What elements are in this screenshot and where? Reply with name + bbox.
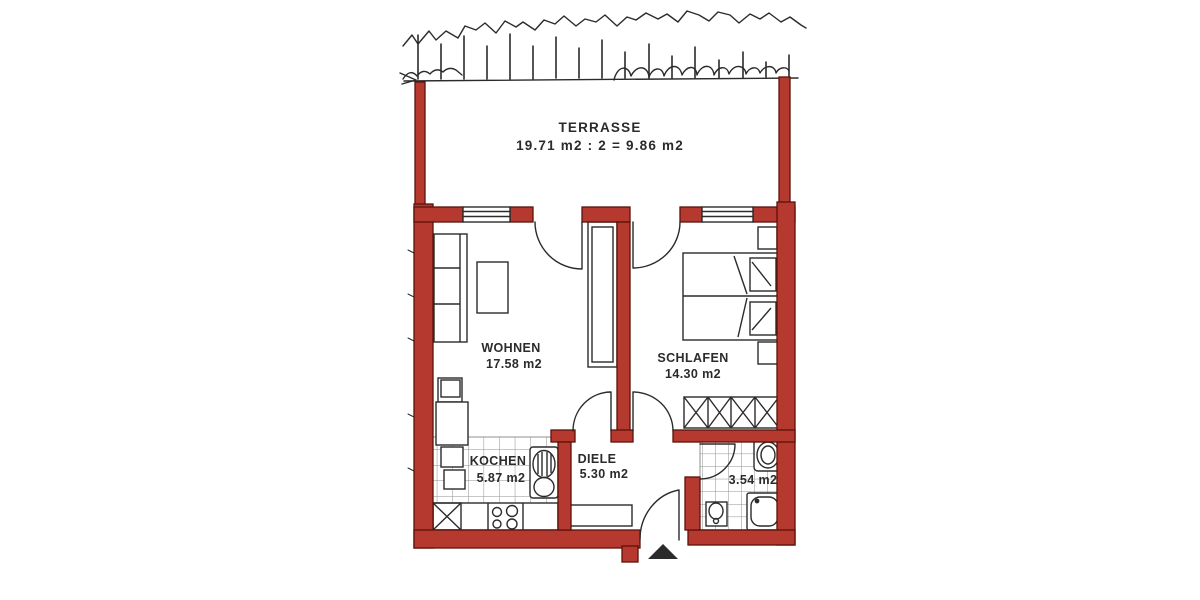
dining-chair-top xyxy=(441,380,460,397)
label-schlafen-area: 14.30 m2 xyxy=(665,366,721,382)
toilet xyxy=(706,502,727,526)
label-terrasse: TERRASSE xyxy=(558,120,641,136)
floorplan-drawing xyxy=(0,0,1200,600)
label-schlafen: SCHLAFEN xyxy=(657,350,728,366)
label-diele-area: 5.30 m2 xyxy=(580,466,629,482)
bed xyxy=(683,253,778,340)
label-diele: DIELE xyxy=(578,451,617,467)
balcony-door-living xyxy=(535,222,582,269)
door-hall-living xyxy=(573,392,611,431)
hedge xyxy=(400,11,806,84)
label-kochen: KOCHEN xyxy=(470,453,527,469)
coffee-table xyxy=(477,262,508,313)
entrance-arrow xyxy=(648,544,678,559)
fence xyxy=(404,34,798,81)
label-kochen-area: 5.87 m2 xyxy=(477,470,526,486)
wall-ticks xyxy=(408,250,414,471)
floorplan: TERRASSE 19.71 m2 : 2 = 9.86 m2 WOHNEN 1… xyxy=(0,0,1200,600)
door-hall-bedroom xyxy=(633,392,673,431)
label-bath-area: 3.54 m2 xyxy=(729,472,778,488)
wardrobe xyxy=(684,397,779,428)
label-wohnen-area: 17.58 m2 xyxy=(486,356,542,372)
label-wohnen: WOHNEN xyxy=(481,340,540,356)
door-entrance xyxy=(640,490,679,540)
wall-shaft xyxy=(588,222,617,367)
label-terrasse-area: 19.71 m2 : 2 = 9.86 m2 xyxy=(516,138,684,154)
sofa xyxy=(434,234,467,342)
nightstand-top xyxy=(758,227,777,249)
dining-table xyxy=(436,402,468,445)
nightstand-bottom xyxy=(758,342,778,364)
kitchen-sink xyxy=(530,447,558,498)
balcony-door-bedroom xyxy=(633,222,680,268)
sideboard xyxy=(570,505,632,526)
